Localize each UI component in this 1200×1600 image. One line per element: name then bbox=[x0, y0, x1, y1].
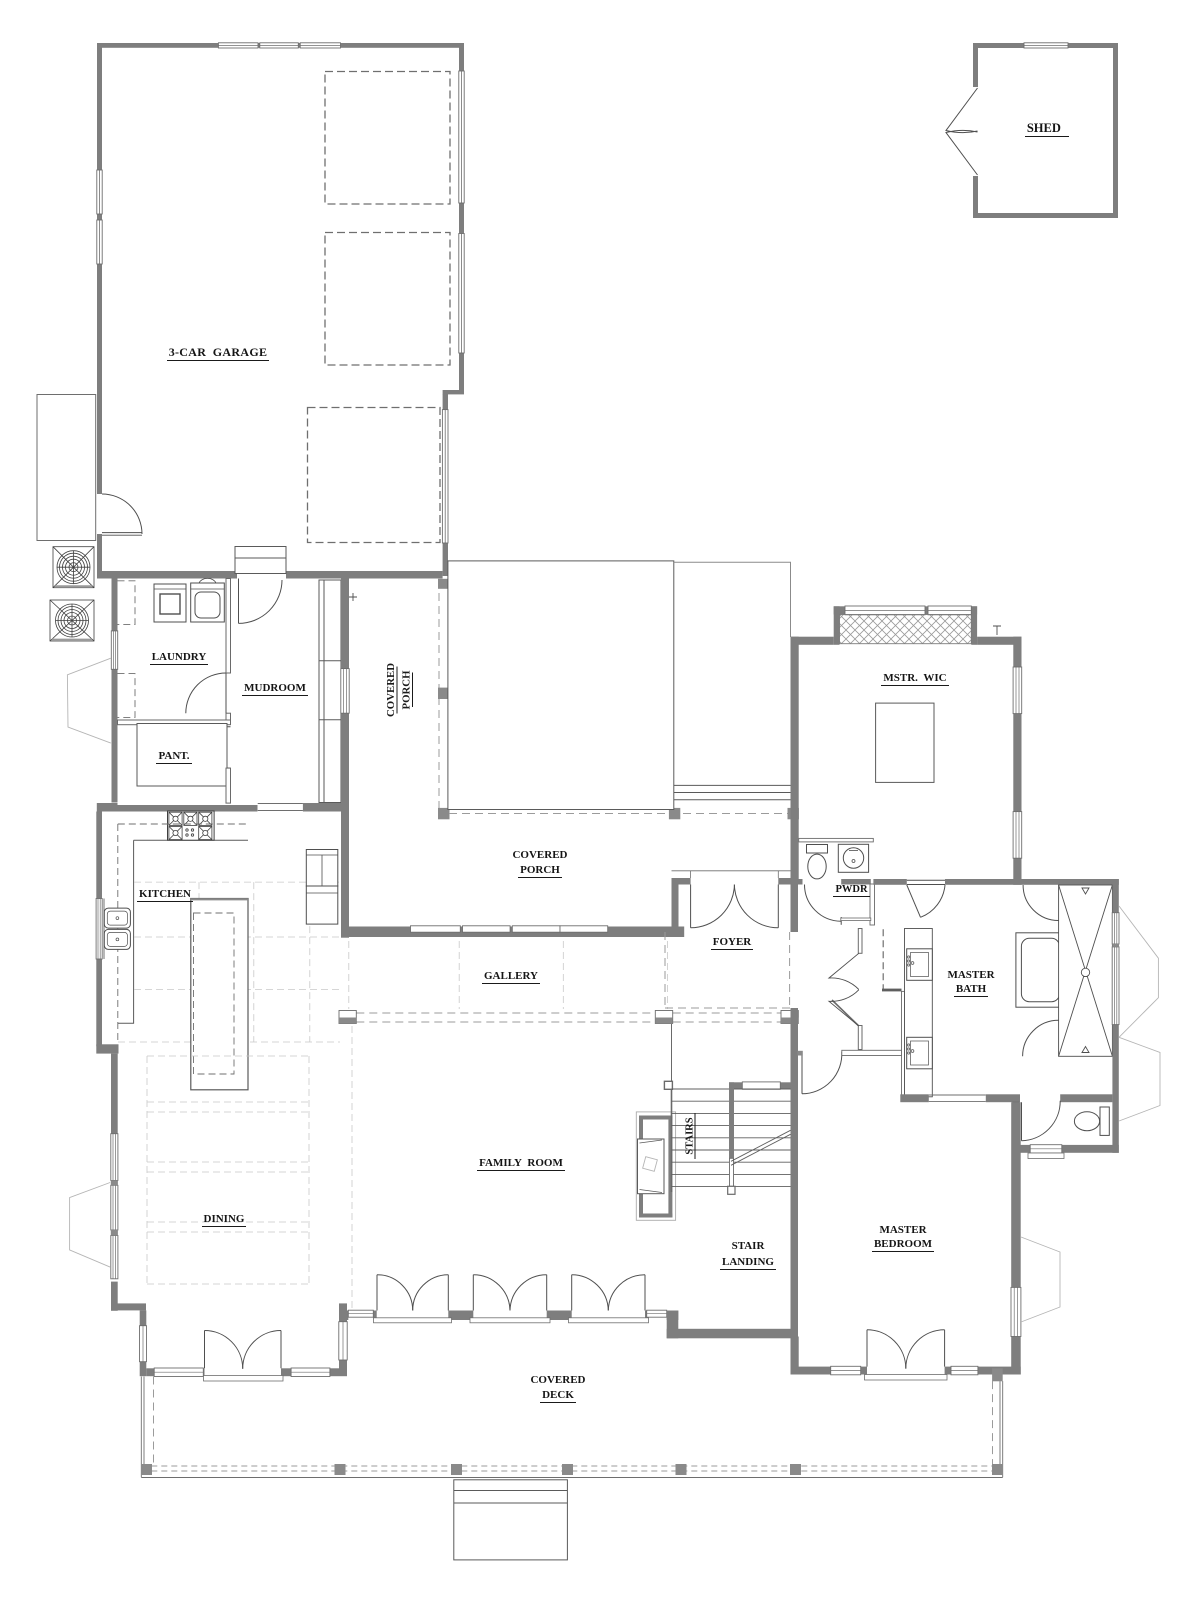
svg-text:PORCH: PORCH bbox=[401, 670, 413, 710]
svg-text:COVERED: COVERED bbox=[385, 663, 397, 717]
svg-text:STAIRS: STAIRS bbox=[685, 1117, 696, 1154]
